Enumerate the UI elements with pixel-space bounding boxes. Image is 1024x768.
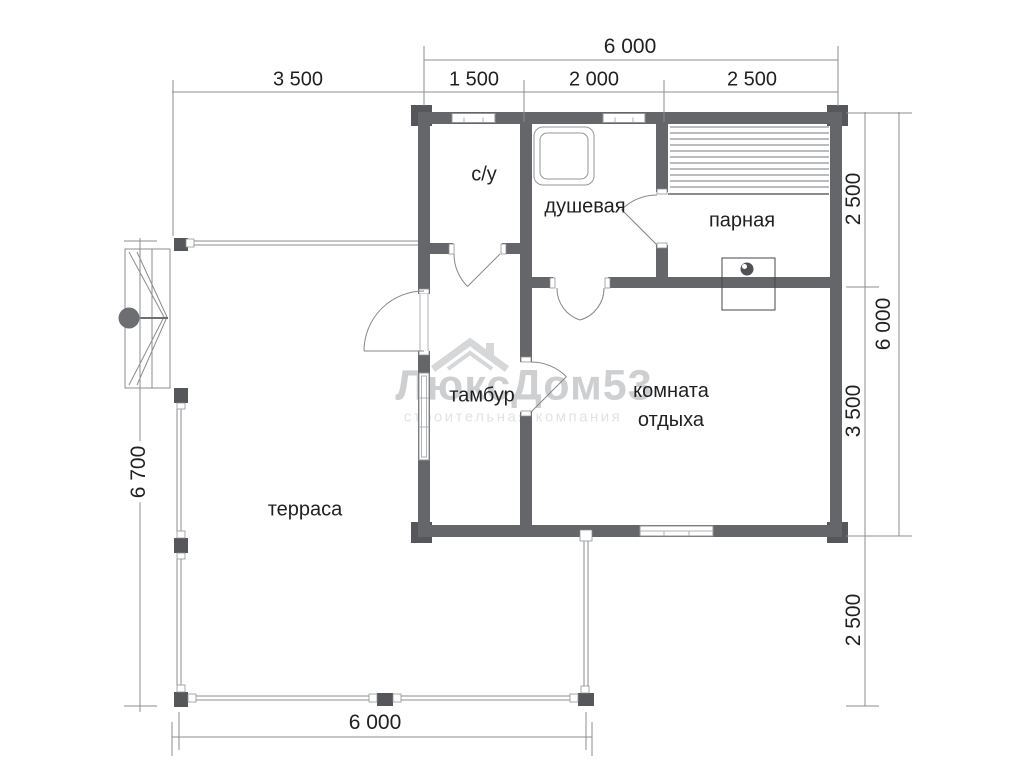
dim-right-segment-3500: 3 500 — [842, 385, 866, 438]
terrace-door-opening — [418, 294, 430, 351]
dim-right-total: 6 000 — [872, 298, 896, 351]
room-label-su: с/у — [471, 164, 497, 187]
dim-right-segment-2500-bottom: 2 500 — [842, 594, 866, 647]
window-tambour-left — [419, 373, 429, 460]
floor-plan-canvas: ЛюксДом53 строительная компания — [0, 0, 1024, 768]
door-jambs — [419, 189, 667, 416]
stairs-post-marker — [119, 308, 140, 329]
door-tambour-rest — [531, 362, 566, 412]
dim-top-segment-1500: 1 500 — [449, 69, 499, 92]
door-steam — [622, 195, 657, 245]
window-su-top — [452, 114, 495, 123]
dim-right-segment-2500-top: 2 500 — [842, 173, 866, 226]
room-label-terrace: терраса — [268, 499, 343, 522]
shower-tray — [534, 127, 594, 185]
door-su — [454, 254, 500, 287]
dim-top-total: 6 000 — [604, 35, 657, 59]
room-label-rest: комната отдыха — [633, 377, 709, 435]
dim-bottom-total: 6 000 — [349, 711, 402, 735]
window-rest-bottom — [640, 526, 713, 536]
door-shower-double — [557, 288, 604, 320]
dimension-lines — [124, 46, 912, 756]
room-label-rest-line1: комната — [633, 377, 709, 406]
dim-top-segment-2500: 2 500 — [727, 69, 777, 92]
door-terrace — [364, 291, 424, 351]
room-label-tambour: тамбур — [449, 385, 515, 408]
room-label-steam: парная — [709, 210, 775, 233]
entrance-stairs — [119, 249, 171, 388]
window-shower-top — [603, 114, 645, 123]
sauna-bench-hatch — [668, 127, 829, 194]
dim-left-total: 6 700 — [127, 442, 151, 503]
dim-top-segment-2000: 2 000 — [569, 69, 619, 92]
room-label-rest-line2: отдыха — [633, 406, 709, 435]
room-label-shower: душевая — [544, 196, 625, 219]
dim-top-segment-3500: 3 500 — [273, 69, 323, 92]
